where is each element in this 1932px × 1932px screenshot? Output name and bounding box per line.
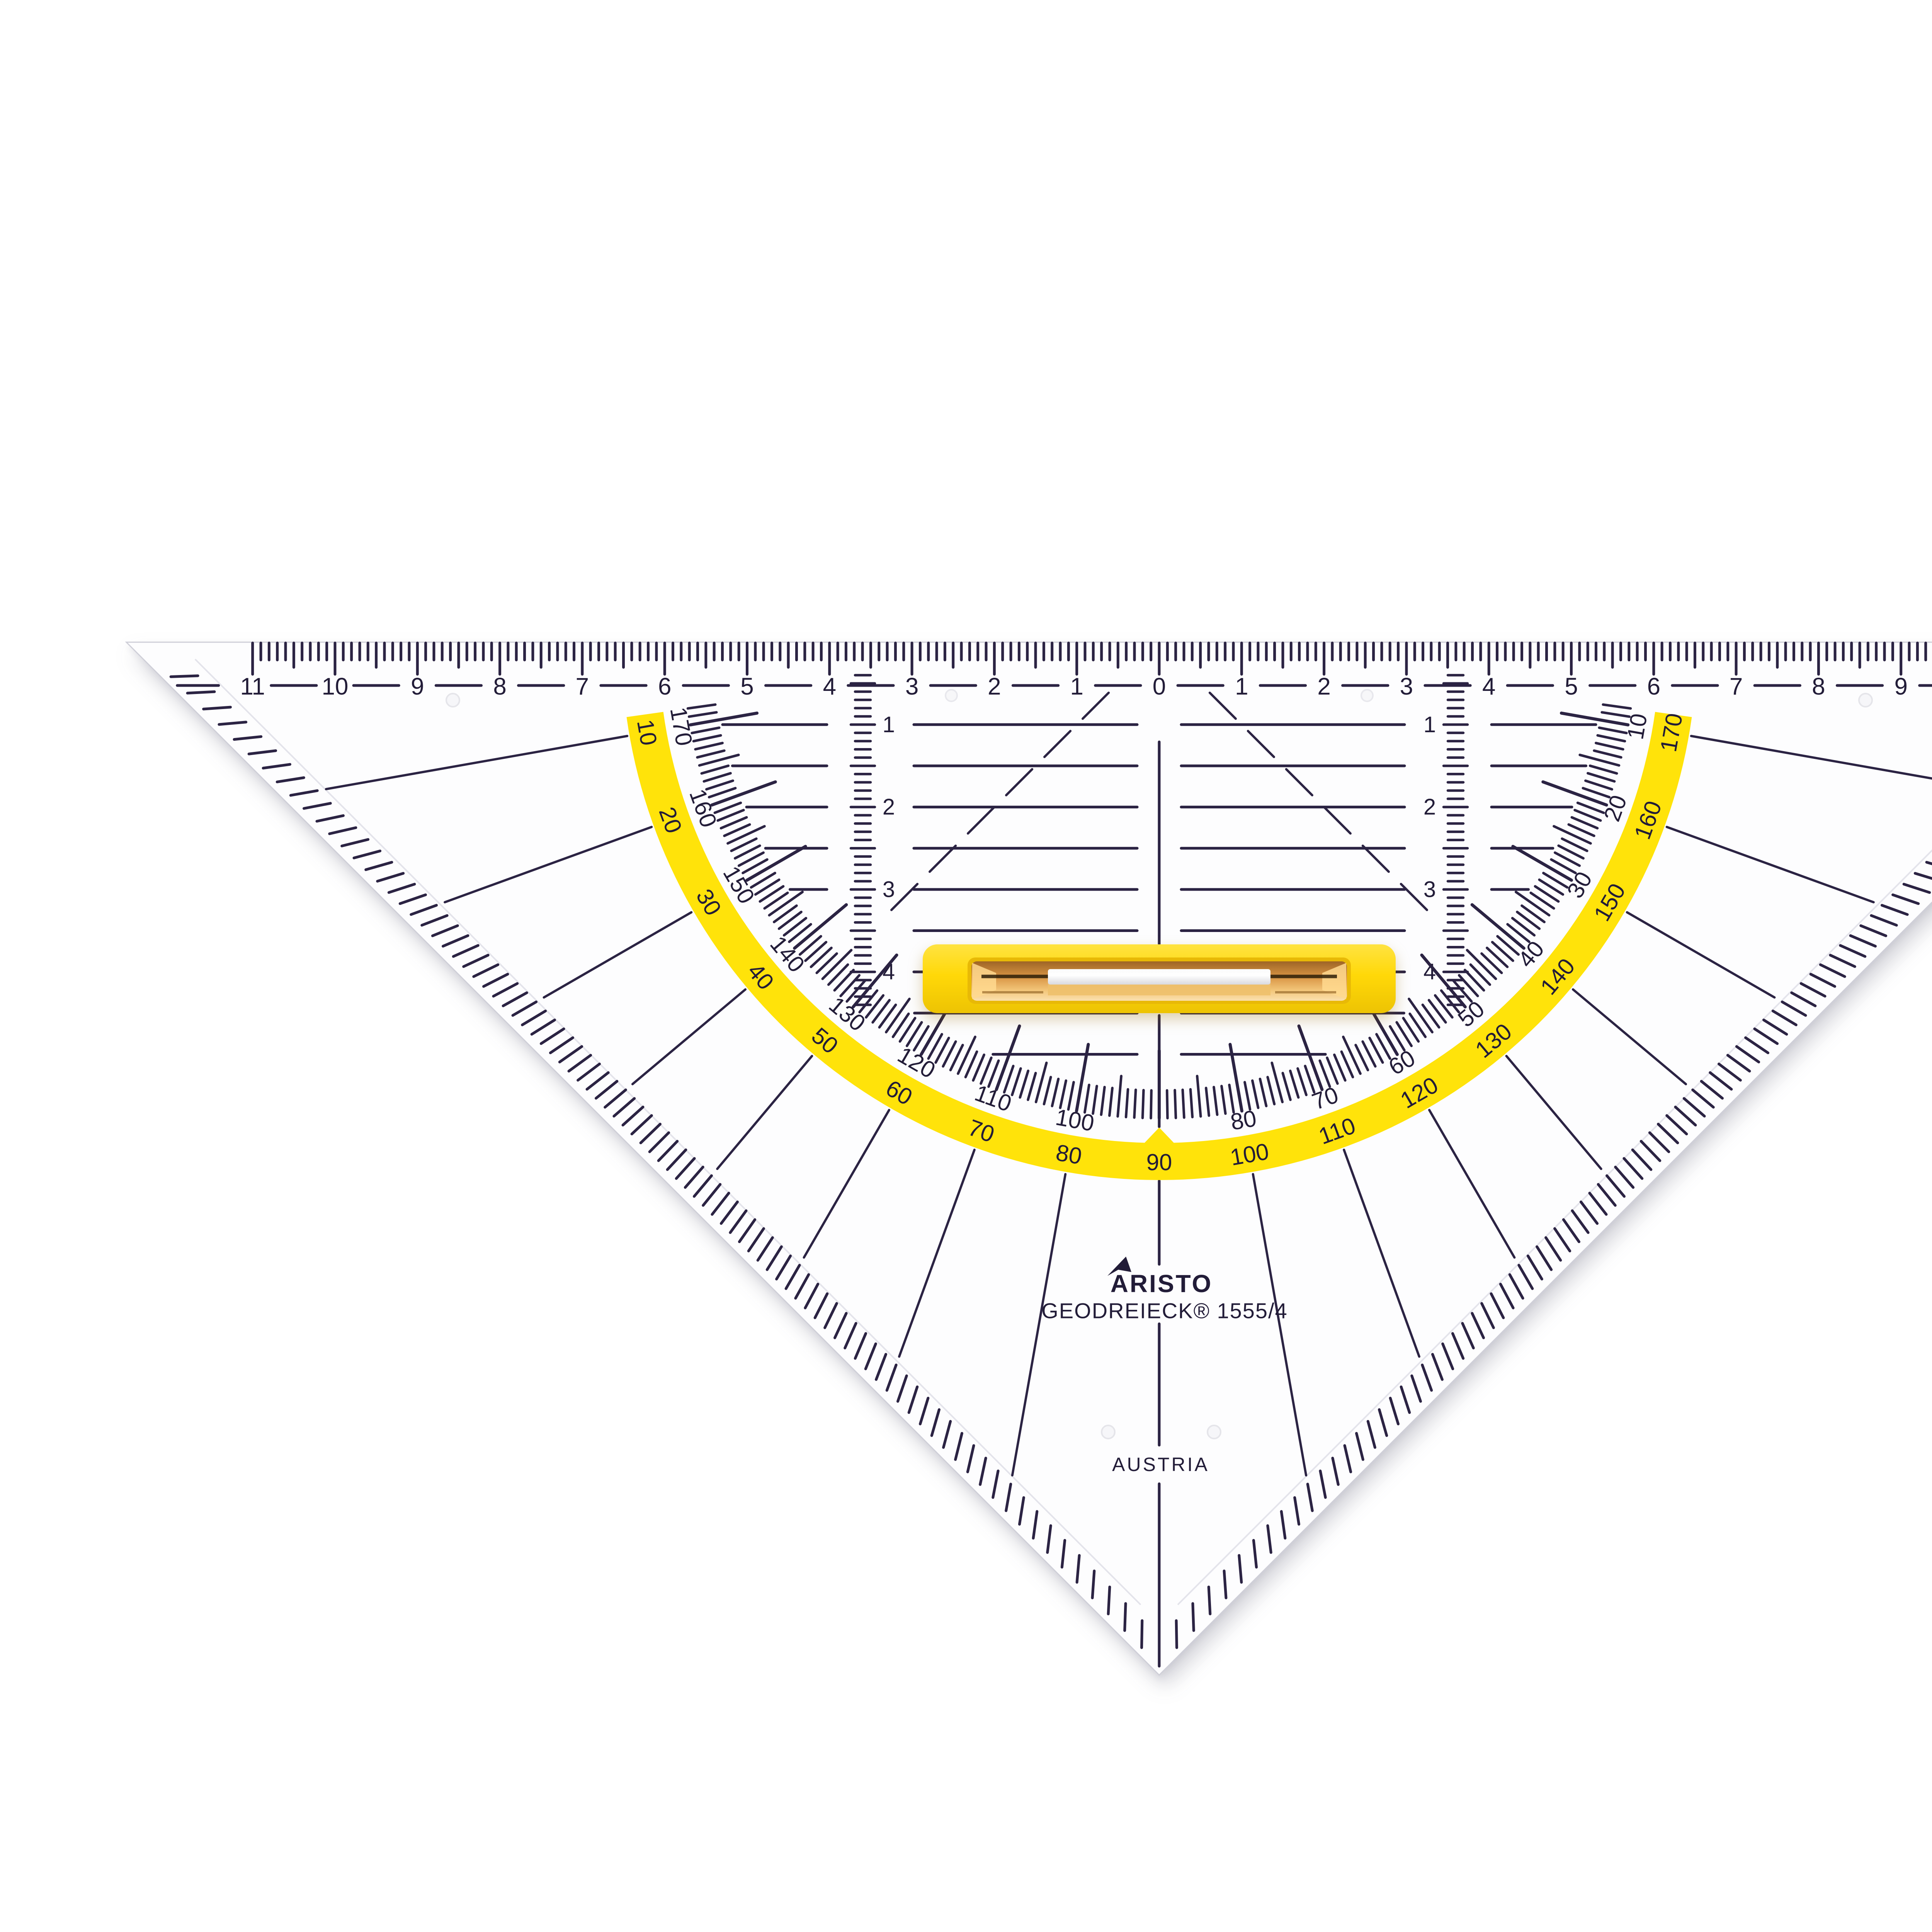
- svg-text:2: 2: [1317, 673, 1330, 700]
- svg-text:6: 6: [1647, 673, 1660, 700]
- svg-text:1: 1: [1070, 673, 1083, 700]
- svg-text:1: 1: [1423, 712, 1436, 737]
- svg-text:7: 7: [576, 673, 589, 700]
- svg-text:7: 7: [1730, 673, 1743, 700]
- svg-text:5: 5: [1565, 673, 1578, 700]
- svg-text:3: 3: [1400, 673, 1413, 700]
- svg-text:80: 80: [1054, 1139, 1084, 1170]
- svg-text:3: 3: [905, 673, 918, 700]
- svg-text:8: 8: [493, 673, 506, 700]
- product-name: GEODREIECK® 1555/4: [1041, 1299, 1288, 1323]
- svg-text:5: 5: [740, 673, 753, 700]
- svg-text:4: 4: [1482, 673, 1495, 700]
- svg-text:0: 0: [1153, 673, 1166, 700]
- svg-text:9: 9: [1894, 673, 1907, 700]
- svg-text:2: 2: [1423, 794, 1436, 820]
- svg-text:4: 4: [823, 673, 836, 700]
- set-square: 111098765432101234567891011 12341234 170…: [126, 642, 1932, 1675]
- grip-handle: [923, 944, 1396, 1013]
- svg-text:2: 2: [988, 673, 1001, 700]
- svg-text:90: 90: [1146, 1150, 1172, 1175]
- svg-text:80: 80: [1228, 1105, 1258, 1135]
- svg-text:10: 10: [322, 673, 349, 700]
- svg-text:6: 6: [658, 673, 671, 700]
- svg-text:8: 8: [1812, 673, 1825, 700]
- geodreieck-photo: 111098765432101234567891011 12341234 170…: [0, 0, 1932, 1932]
- svg-text:9: 9: [411, 673, 424, 700]
- svg-text:3: 3: [883, 877, 895, 902]
- grip-bar: [1048, 969, 1270, 985]
- svg-text:3: 3: [1423, 877, 1436, 902]
- svg-text:2: 2: [883, 794, 895, 820]
- svg-text:1: 1: [883, 712, 895, 737]
- svg-text:10: 10: [632, 718, 662, 747]
- brand-logo: ARISTO: [1111, 1270, 1213, 1298]
- svg-text:11: 11: [240, 673, 265, 700]
- svg-text:1: 1: [1235, 673, 1248, 700]
- origin-label: AUSTRIA: [1112, 1454, 1209, 1475]
- svg-text:10: 10: [1622, 711, 1652, 741]
